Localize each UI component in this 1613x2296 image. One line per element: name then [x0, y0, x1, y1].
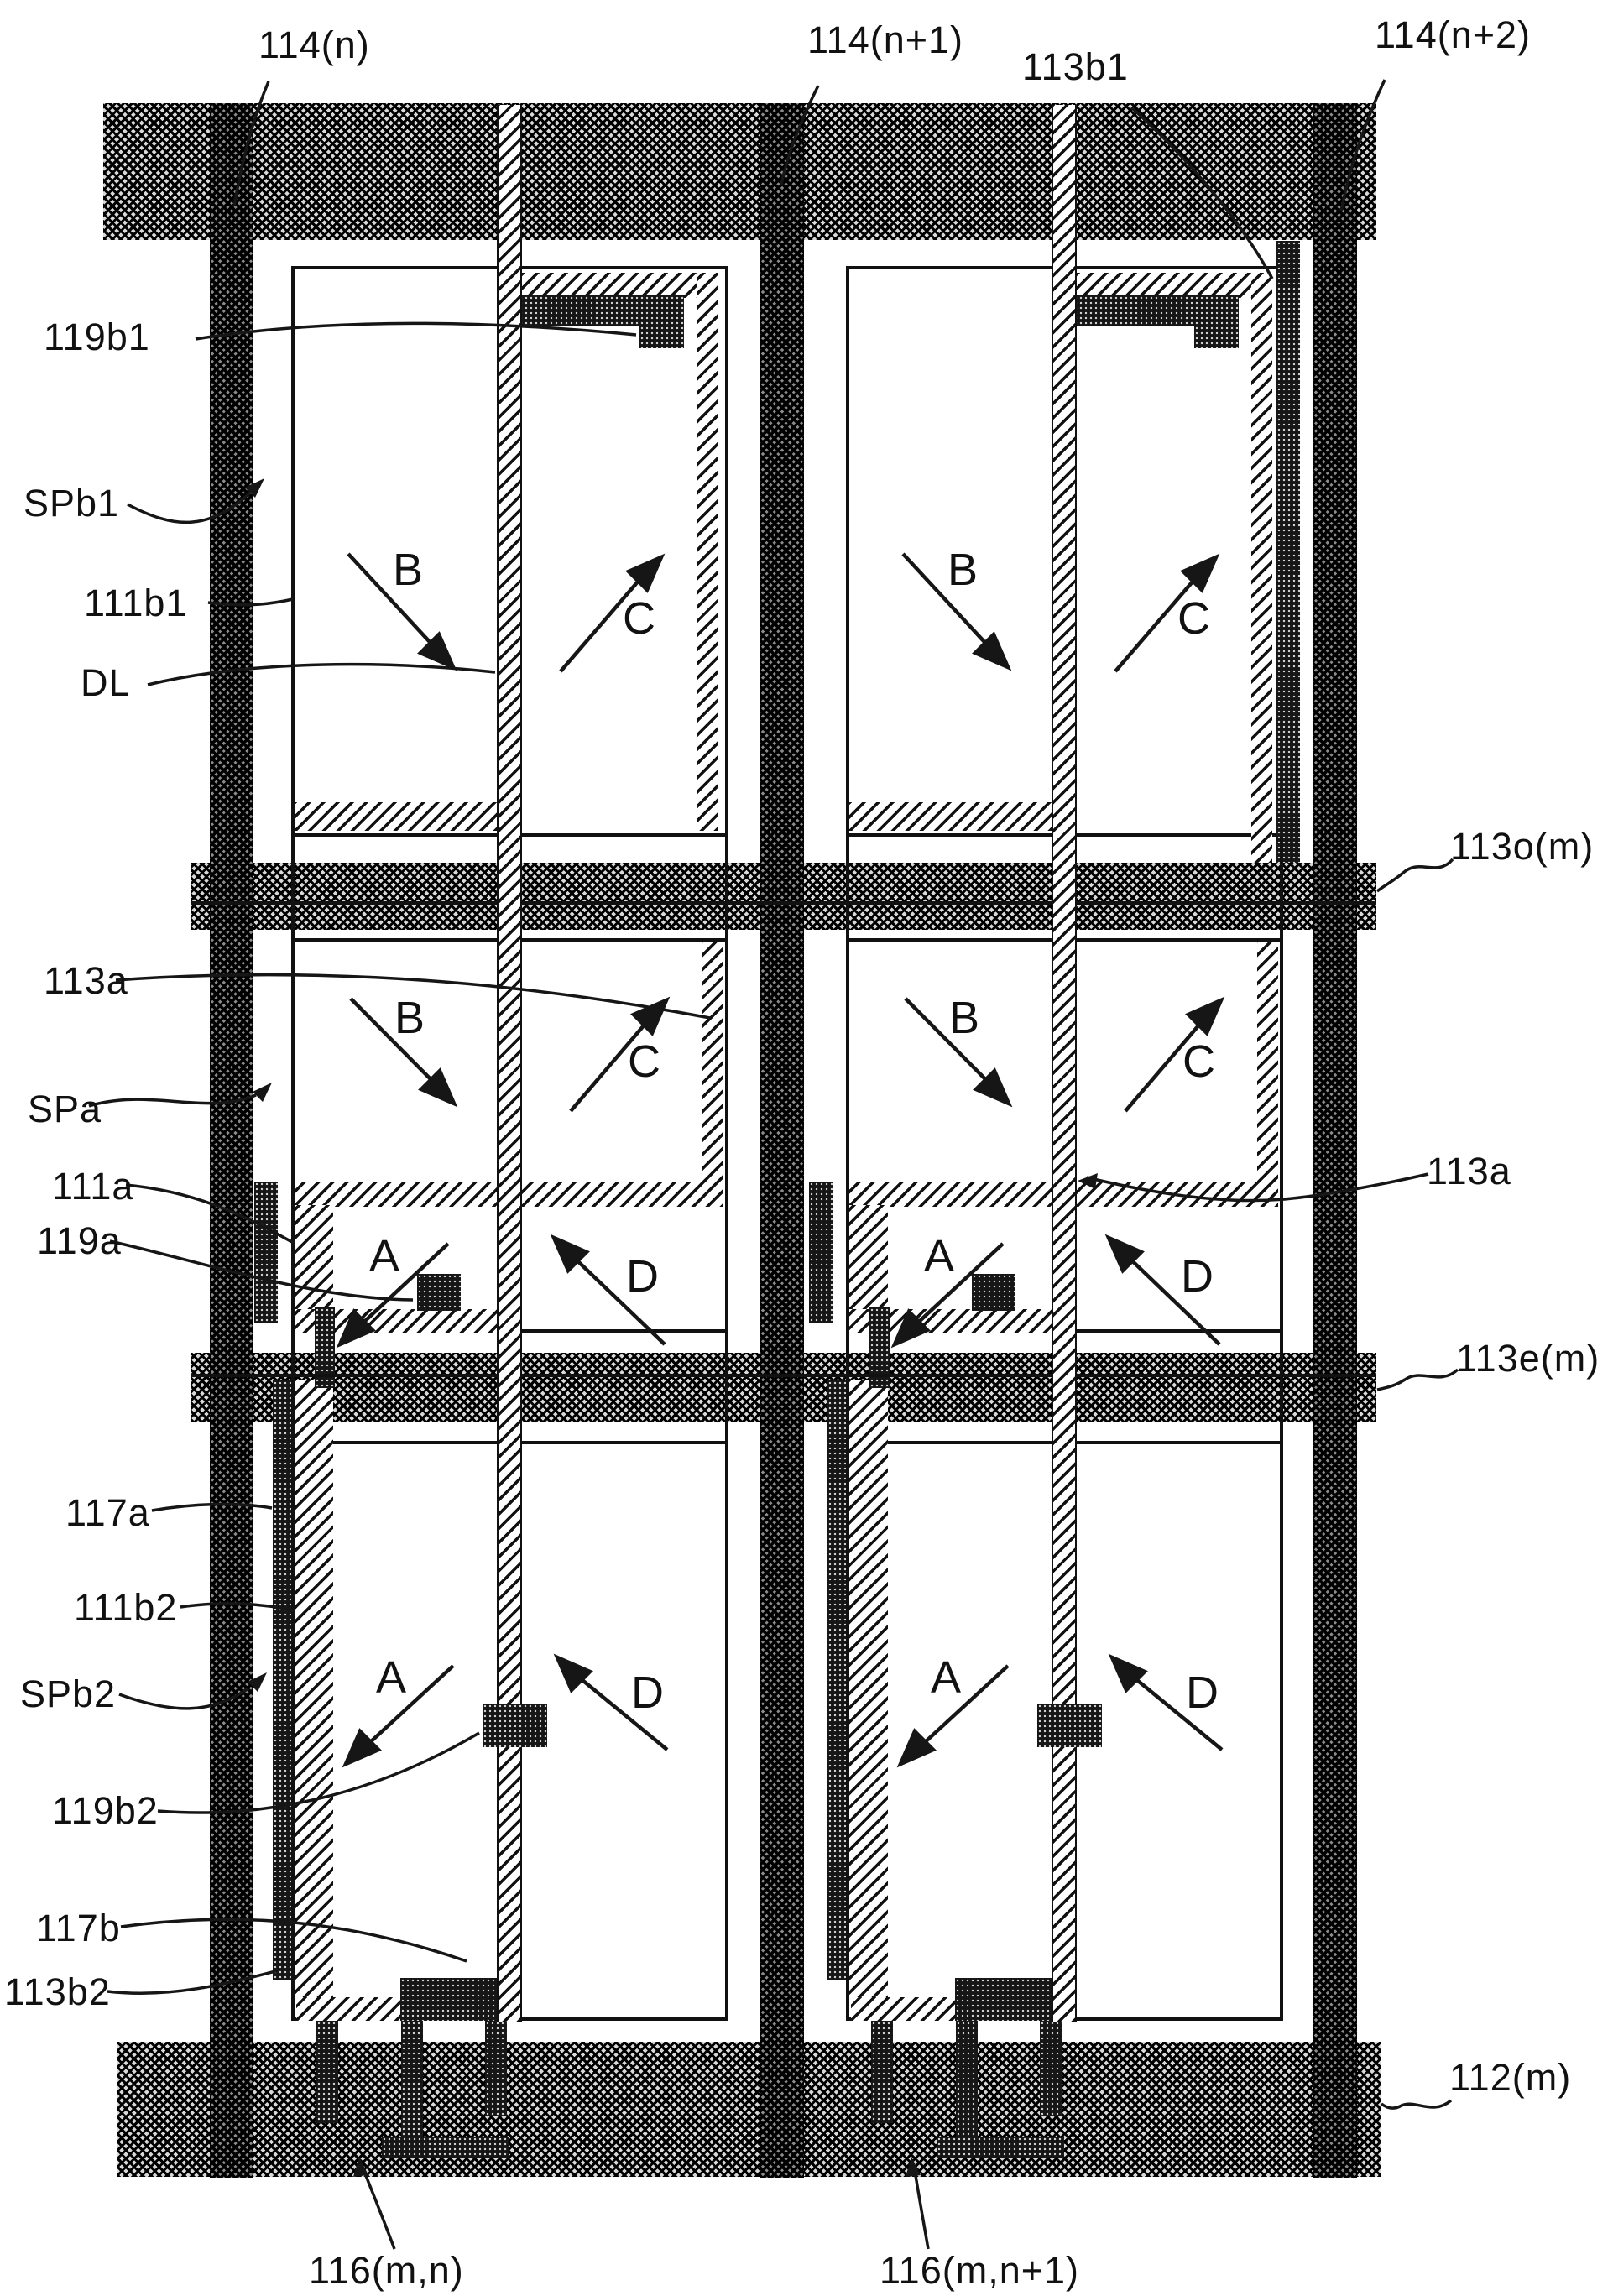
- electrode-bottom-bar: [295, 802, 497, 831]
- electrode-edge-line: [291, 1333, 295, 1441]
- tft-source-block: [400, 1978, 508, 2021]
- domain-label-B: B: [393, 544, 423, 596]
- pointer-arrowhead: [253, 1083, 272, 1102]
- a-frame-left-strip: [295, 1205, 333, 1316]
- label-113a-right: 113a: [1427, 1151, 1511, 1191]
- domain-label-D: D: [626, 1250, 659, 1302]
- domain-label-A: A: [931, 1652, 961, 1704]
- column-114n1: [760, 103, 804, 2178]
- band-113e-centerline: [191, 1374, 1376, 1377]
- tft-stub: [401, 2021, 423, 2148]
- label-117b: 117b: [36, 1908, 121, 1948]
- electrode-edge-line: [291, 837, 295, 938]
- label-111a: 111a: [52, 1166, 133, 1206]
- storage-pad-119b1: [639, 326, 684, 348]
- electrode-edge-line: [846, 837, 849, 938]
- label-spb1: SPb1: [23, 483, 119, 523]
- domain-label-A: A: [924, 1230, 954, 1282]
- electrode-edge-line: [725, 1333, 728, 1441]
- domain-label-C: C: [628, 1036, 660, 1088]
- edge-bar-113a: [254, 1182, 278, 1323]
- leader-116mn: [362, 2165, 394, 2249]
- band-112-bottom: [117, 2042, 1381, 2177]
- domain-label-D: D: [1186, 1667, 1219, 1719]
- tft-stub: [1040, 2021, 1062, 2116]
- electrode-right-strip: [702, 942, 723, 1207]
- contact-pad-119b2: [1037, 1704, 1102, 1747]
- leader-113e: [1377, 1370, 1458, 1390]
- tft-source-block: [955, 1978, 1062, 2021]
- storage-pad-119b1: [1194, 326, 1239, 348]
- cap-strip-113b1: [1276, 241, 1300, 863]
- band-113o-centerline: [191, 901, 1376, 905]
- electrode-edge-line: [1280, 837, 1283, 938]
- domain-label-C: C: [1177, 592, 1210, 644]
- label-dl: DL: [81, 663, 131, 702]
- contact-pad-119a: [417, 1274, 461, 1311]
- source-bar-116: [382, 2137, 509, 2158]
- domain-label-C: C: [1182, 1036, 1215, 1088]
- patent-figure-page: 114(n) 114(n+1) 113b1 114(n+2) 119b1 SPb…: [0, 0, 1613, 2296]
- label-113o: 113o(m): [1450, 827, 1594, 866]
- contact-pad-119b2: [483, 1704, 547, 1747]
- domain-label-D: D: [1181, 1250, 1214, 1302]
- domain-label-B: B: [949, 992, 979, 1044]
- label-114n2: 114(n+2): [1375, 15, 1531, 55]
- domain-label-B: B: [394, 992, 425, 1044]
- label-111b2: 111b2: [74, 1588, 177, 1627]
- label-113b2: 113b2: [4, 1972, 111, 2012]
- cap-electrode-117b: [849, 1380, 888, 1999]
- tft-stub: [871, 2021, 893, 2123]
- label-113e: 113e(m): [1456, 1338, 1600, 1378]
- label-114n1: 114(n+1): [807, 20, 963, 60]
- label-119a: 119a: [37, 1221, 122, 1260]
- storage-pad-119b1: [519, 295, 684, 326]
- column-114n: [210, 103, 253, 2178]
- label-spa: SPa: [28, 1089, 102, 1129]
- label-119b2: 119b2: [52, 1791, 159, 1830]
- electrode-right-strip: [1257, 942, 1278, 1207]
- contact-pad-119a: [972, 1274, 1015, 1311]
- label-113b1: 113b1: [1022, 47, 1129, 86]
- label-116mn: 116(m,n): [309, 2251, 464, 2290]
- domain-label-C: C: [623, 592, 655, 644]
- label-113a-left: 113a: [44, 961, 128, 1000]
- label-117a: 117a: [65, 1493, 150, 1532]
- column-114n2: [1313, 103, 1357, 2178]
- electrode-right-strip: [697, 273, 718, 831]
- source-bar-116: [937, 2137, 1064, 2158]
- electrode-bottom-bar: [849, 802, 1052, 831]
- electrode-edge-line: [846, 1333, 849, 1441]
- tft-stub: [956, 2021, 978, 2148]
- electrode-edge-line: [725, 837, 728, 938]
- electrode-top-bar: [1052, 273, 1269, 298]
- domain-label-A: A: [376, 1652, 406, 1704]
- edge-bar-113a: [809, 1182, 833, 1323]
- cap-electrode-117a: [827, 1380, 846, 1980]
- storage-pad-119b1: [1073, 295, 1239, 326]
- domain-label-B: B: [947, 544, 978, 596]
- leader-113o: [1377, 859, 1453, 891]
- label-112: 112(m): [1449, 2058, 1571, 2097]
- electrode-edge-line: [1280, 1333, 1283, 1441]
- electrode-right-strip: [1251, 273, 1272, 863]
- leader-112: [1381, 2100, 1451, 2108]
- label-116mn1: 116(m,n+1): [880, 2251, 1079, 2290]
- a-frame-left-strip: [849, 1205, 888, 1316]
- domain-label-A: A: [369, 1230, 399, 1282]
- tft-stub: [316, 2021, 338, 2123]
- leader-116mn1: [914, 2165, 928, 2249]
- cap-electrode-117a: [273, 1380, 291, 1980]
- label-spb2: SPb2: [20, 1674, 116, 1714]
- electrode-top-bar: [497, 273, 714, 298]
- tft-stub: [485, 2021, 507, 2116]
- gate-band-top: [103, 103, 1376, 240]
- label-114n: 114(n): [258, 25, 370, 65]
- label-111b1: 111b1: [84, 583, 187, 623]
- cap-electrode-117b: [295, 1380, 333, 1999]
- label-119b1: 119b1: [44, 317, 150, 357]
- domain-label-D: D: [631, 1667, 664, 1719]
